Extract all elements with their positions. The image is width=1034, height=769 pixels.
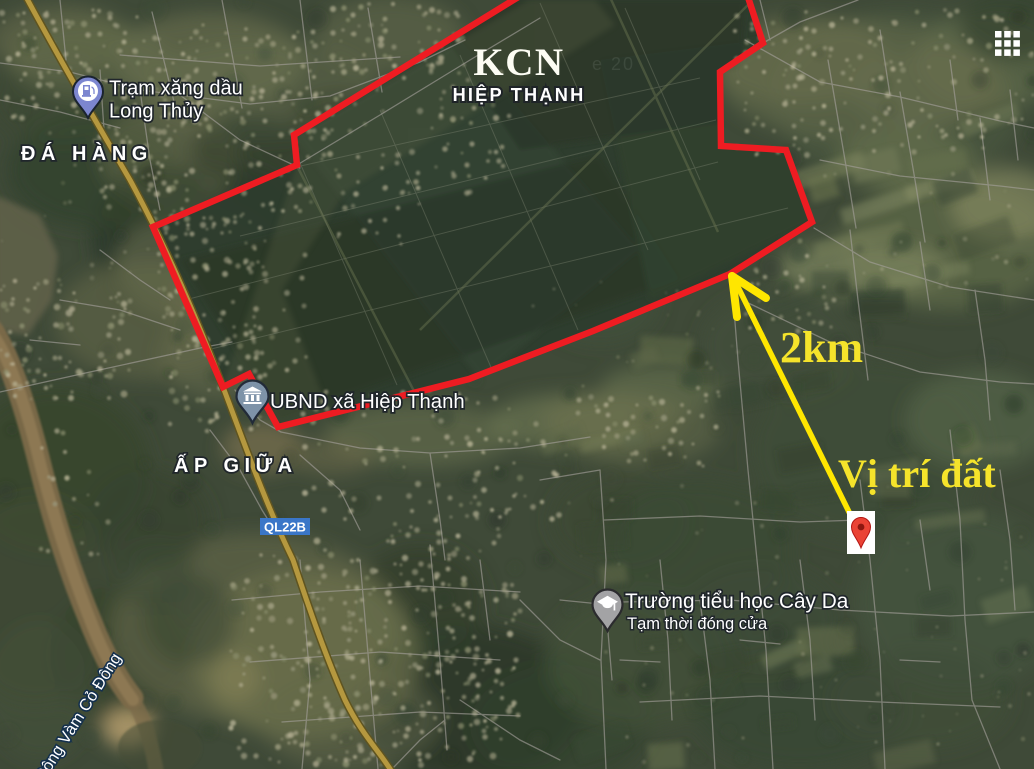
svg-text:Vị trí đất: Vị trí đất: [838, 451, 996, 496]
svg-text:ĐÁ HÀNG: ĐÁ HÀNG: [21, 142, 153, 165]
svg-text:Tạm thời đóng cửa: Tạm thời đóng cửa: [627, 615, 768, 633]
svg-text:UBND xã Hiệp Thạnh: UBND xã Hiệp Thạnh: [270, 391, 465, 413]
svg-text:HIỆP THẠNH: HIỆP THẠNH: [453, 84, 586, 105]
svg-text:ẤP GIỮA: ẤP GIỮA: [174, 453, 298, 477]
svg-text:QL22B: QL22B: [264, 520, 306, 535]
svg-text:Trạm xăng dầu: Trạm xăng dầu: [109, 78, 243, 100]
svg-text:KCN: KCN: [473, 41, 564, 84]
svg-text:2km: 2km: [780, 323, 863, 372]
svg-text:e 20: e 20: [592, 54, 635, 74]
svg-text:Trường tiểu học Cây Da: Trường tiểu học Cây Da: [625, 590, 849, 613]
svg-text:Long Thủy: Long Thủy: [109, 101, 203, 123]
